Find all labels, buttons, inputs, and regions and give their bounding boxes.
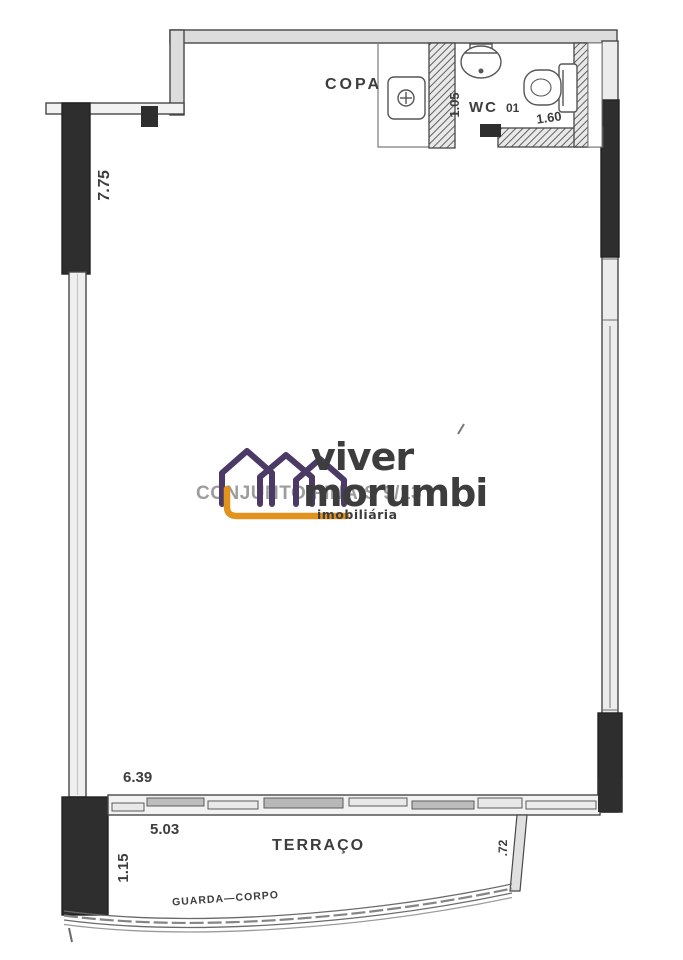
sliding-panel [478, 798, 522, 808]
floor-plan-page: CONJUNTO FINAIS 9/13 viver morumbi imobi… [0, 0, 683, 960]
dim-wc-depth: 1.05 [447, 92, 462, 117]
guarda-corpo-label: GUARDA—CORPO [172, 889, 280, 908]
right-wall-solid-upper [601, 100, 619, 257]
terrace-right-wall [510, 815, 527, 891]
copa-wc-area [378, 43, 603, 148]
dim-wc-width: 1.60 [535, 108, 562, 126]
wc-door-leaf [480, 124, 501, 137]
copa-sink [388, 77, 425, 119]
terrace-area [64, 815, 527, 942]
sliding-panel [412, 801, 474, 809]
bottom-left-pillar [62, 797, 108, 915]
sliding-panel [208, 801, 258, 809]
top-wall [170, 30, 617, 43]
bottom-right-corner-pillar [598, 778, 622, 812]
wc-shaft [588, 43, 602, 147]
railing [64, 884, 512, 932]
door-frame-block [141, 106, 158, 127]
toilet [524, 64, 577, 112]
sliding-panel [112, 803, 144, 811]
left-wall-pillar [62, 103, 90, 274]
scan-tick-mark [69, 928, 72, 942]
dim-terrace-left-depth: 1.15 [115, 853, 132, 882]
scan-mark [458, 424, 464, 434]
top-left-step-wall [170, 30, 184, 115]
dim-terrace-right-depth: .72 [496, 839, 510, 856]
watermark-logo: viver morumbi imobiliária [222, 435, 487, 522]
brand-tagline: imobiliária [317, 507, 398, 522]
floor-plan-svg: CONJUNTO FINAIS 9/13 viver morumbi imobi… [0, 0, 683, 960]
sliding-panel [349, 798, 407, 806]
sliding-panel [147, 798, 204, 806]
wc-label: WC [469, 99, 498, 116]
copa-partition-line [378, 43, 430, 147]
copa-label: COPA [325, 76, 382, 93]
wc-number-label: 01 [506, 101, 520, 115]
sliding-door-band [108, 778, 622, 815]
dim-terrace-opening: 5.03 [150, 821, 179, 838]
sliding-panel [526, 801, 596, 809]
dim-left-wall: 7.75 [95, 169, 113, 202]
terraco-label: TERRAÇO [272, 837, 365, 854]
sliding-panel [264, 798, 343, 808]
dim-room-width: 6.39 [123, 769, 152, 786]
wc-sink [461, 44, 501, 78]
